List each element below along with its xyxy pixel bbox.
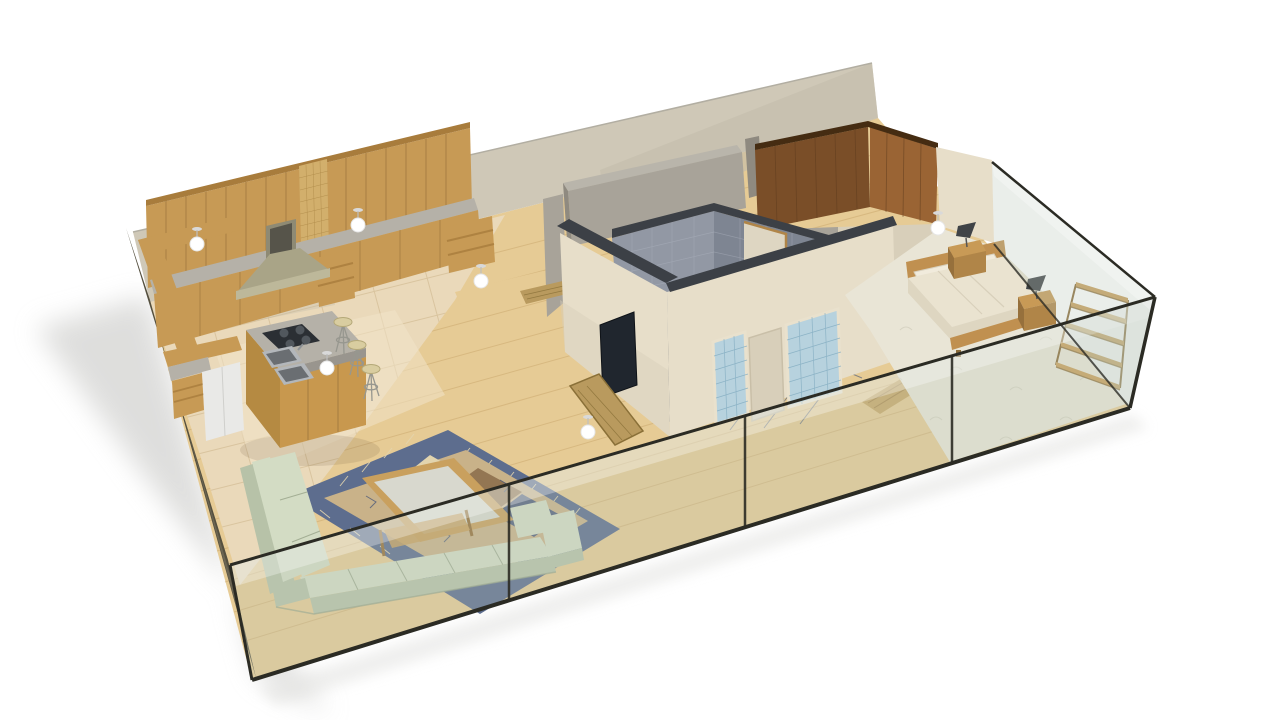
- floorplan-3d-render: [0, 0, 1280, 720]
- lamp-stem: [966, 238, 967, 247]
- render-canvas: [0, 0, 1280, 720]
- glass-block-panel: [713, 332, 748, 424]
